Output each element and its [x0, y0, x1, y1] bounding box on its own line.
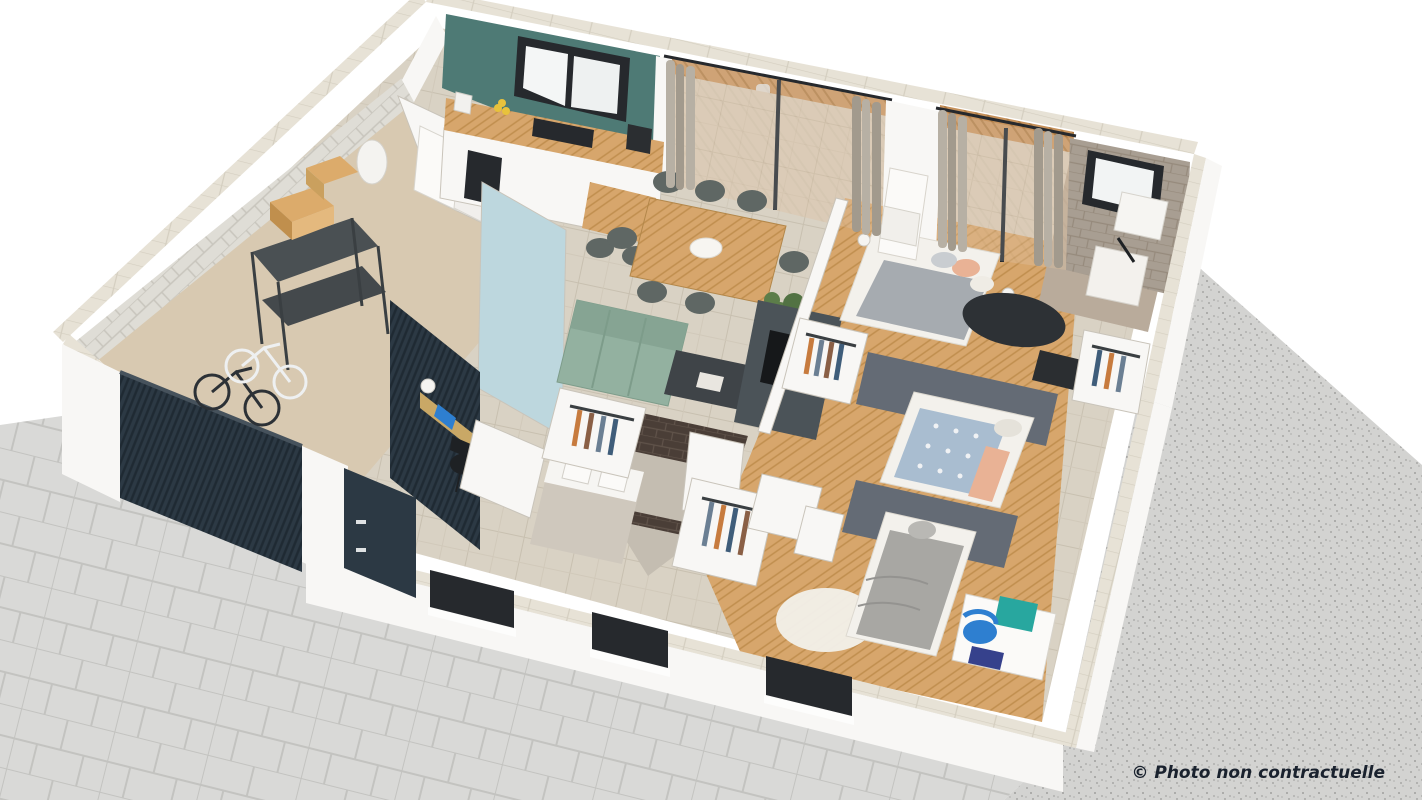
curtain: [938, 110, 967, 252]
curtain: [852, 96, 881, 236]
plate: [690, 238, 722, 258]
floorplan-render: © Photo non contractuelle: [0, 0, 1422, 800]
vanity: [1086, 246, 1148, 306]
desk-lamp: [421, 379, 435, 393]
curtain: [1034, 128, 1063, 268]
watermark-text: © Photo non contractuelle: [1131, 763, 1385, 783]
food-processor: [454, 92, 472, 114]
wardrobe-bedroom-2: [1072, 330, 1150, 414]
water-heater: [357, 140, 387, 184]
curtain: [666, 60, 695, 190]
coffee-machine: [626, 124, 652, 154]
pillow: [908, 521, 936, 539]
front-pillar: [302, 446, 348, 582]
bedside-lamp: [858, 234, 870, 246]
floorplan-svg: © Photo non contractuelle: [0, 0, 1422, 800]
pillow: [994, 419, 1022, 437]
